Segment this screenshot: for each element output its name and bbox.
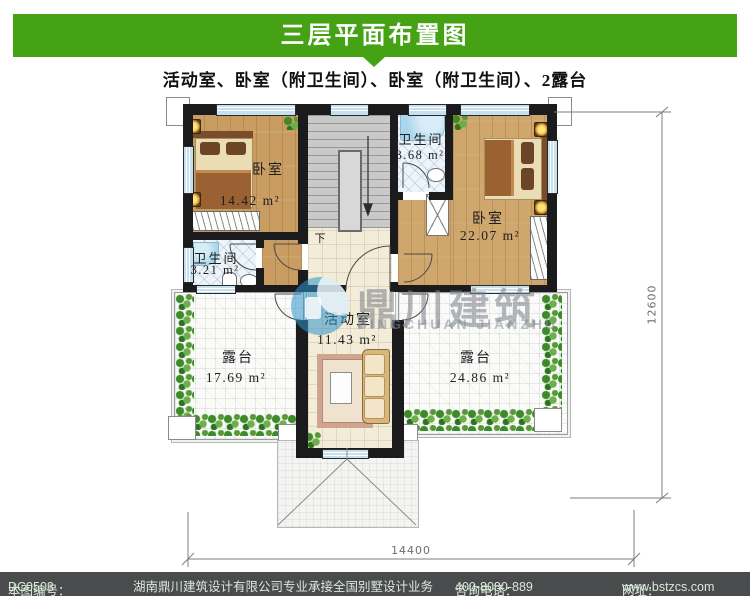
- wall-bathtop-east: [445, 104, 453, 200]
- sofa-cushion-2: [364, 376, 385, 397]
- wall-stair-east: [390, 104, 398, 254]
- sofa-cushion-3: [364, 398, 385, 419]
- footer-number-value: DC0503: [8, 580, 54, 594]
- label-stair-down: 下: [315, 230, 326, 246]
- activity-table: [330, 372, 352, 404]
- watermark-logo: [291, 277, 349, 335]
- footer-company: 湖南鼎川建筑设计有限公司专业承接全国别墅设计业务: [133, 576, 433, 595]
- wall-bathbottom-east-1: [256, 240, 264, 248]
- terrace-left-plants-west: [176, 294, 194, 434]
- area-terrace-right: 24.86 m²: [450, 370, 510, 386]
- page-title: 三层平面布置图: [13, 14, 737, 57]
- stair-railing: [338, 150, 362, 232]
- plant-icon-2: [452, 114, 468, 130]
- footer-phone-value: 400-8080-889: [455, 580, 533, 594]
- sink-top-bath: [427, 168, 445, 182]
- window-west-bedroom: [183, 146, 194, 194]
- watermark-logo-mark: [305, 297, 321, 319]
- label-bath-top: 卫生间: [398, 129, 443, 148]
- floor-plan-page: 三层平面布置图 活动室、卧室（附卫生间）、卧室（附卫生间）、2露台: [0, 0, 750, 596]
- wall-bedroomleft-stair: [298, 104, 308, 244]
- bed-left-pillow-1: [200, 142, 220, 155]
- label-terrace-right: 露台: [460, 347, 492, 367]
- wardrobe-right-bedroom: [426, 194, 449, 236]
- window-activity-south: [322, 449, 369, 459]
- window-north-3: [408, 104, 447, 116]
- wall-bathtop-south-1: [398, 192, 403, 200]
- footer-bar: 本图编号：DC0503 湖南鼎川建筑设计有限公司专业承接全国别墅设计业务 咨询电…: [0, 572, 750, 596]
- sofa-cushion-1: [364, 354, 385, 375]
- wall-bathtop-south-2: [429, 192, 445, 200]
- watermark-en-text: DINGCHUAN JIANZHU: [357, 316, 558, 332]
- window-north-1: [216, 104, 296, 116]
- wall-east: [547, 104, 557, 292]
- bed-right-blanket: [485, 140, 514, 196]
- label-bedroom-right: 卧室: [472, 208, 504, 228]
- area-bath-top: 3.68 m²: [396, 148, 445, 163]
- wall-activity-west: [296, 320, 308, 448]
- closet-bedroom-right: [530, 216, 548, 280]
- window-east-bedroom: [547, 140, 558, 194]
- bed-left-pillow-2: [226, 142, 246, 155]
- bed-right-pillow-1: [521, 142, 534, 164]
- plant-icon-1: [284, 116, 298, 130]
- label-bedroom-left: 卧室: [252, 159, 284, 179]
- area-bedroom-right: 22.07 m²: [460, 228, 520, 244]
- window-south-bath: [196, 285, 236, 294]
- bed-right-pillow-2: [521, 168, 534, 190]
- terrace-post-1: [168, 416, 196, 440]
- dimension-bottom: 14400: [385, 544, 437, 557]
- window-north-4: [460, 104, 530, 116]
- bed-left-headboard: [193, 131, 253, 138]
- wall-activity-east: [392, 320, 404, 448]
- dimension-right: 12600: [646, 283, 659, 327]
- watermark-logo-swoosh: [317, 277, 349, 315]
- wall-bedroomleft-south: [191, 232, 302, 240]
- label-terrace-left: 露台: [222, 347, 254, 367]
- area-bath-bottom: 3.21 m²: [191, 263, 240, 278]
- wall-bathbottom-east-2: [256, 268, 264, 292]
- area-bedroom-left: 14.42 m²: [220, 193, 280, 209]
- terrace-post-4: [534, 408, 562, 432]
- plan-subtitle: 活动室、卧室（附卫生间）、卧室（附卫生间）、2露台: [0, 66, 750, 91]
- area-terrace-left: 17.69 m²: [206, 370, 266, 386]
- bedroom-left-floor-strip: [262, 235, 302, 292]
- closet-bedroom-left: [192, 211, 260, 231]
- window-north-2: [330, 104, 369, 116]
- footer-site-value: www.bstzcs.com: [622, 580, 714, 594]
